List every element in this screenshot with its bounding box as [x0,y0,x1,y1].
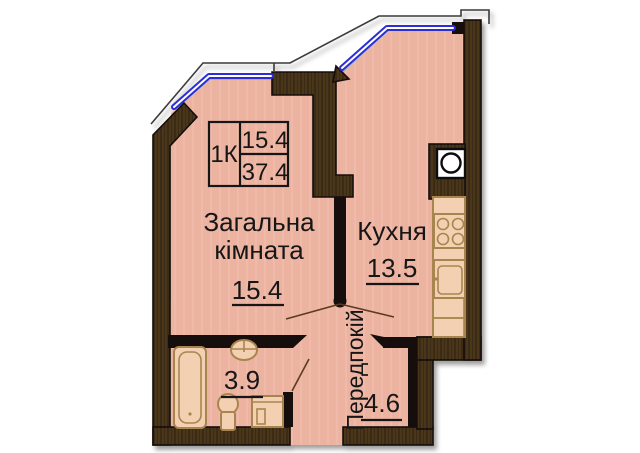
info-living-area: 15.4 [242,127,289,154]
floor-plan-page: 1К 15.4 37.4 Загальна кімната 15.4 Кухня… [0,0,640,453]
apartment-type-label: 1К [210,141,237,168]
toilet-tank [221,412,235,430]
living-room-area: 15.4 [232,275,283,305]
kitchen-area: 13.5 [367,253,418,283]
living-room-label-line2: кімната [214,235,304,265]
info-total-area: 37.4 [242,159,289,186]
entry-top-wall [383,337,417,348]
entry-right-wall-face [408,348,417,427]
hallway-floor [168,300,430,445]
kitchen-right-wall [464,20,481,360]
bathroom-right-wall [283,392,293,427]
living-room-label-line1: Загальна [203,207,315,237]
bathroom-area: 3.9 [224,365,260,395]
kitchen-sink-faucet [434,277,437,280]
boiler-icon [442,154,461,173]
floor-plan: 1К 15.4 37.4 Загальна кімната 15.4 Кухня… [0,0,640,453]
kitchen-label: Кухня [357,216,427,246]
hallway-area: 4.6 [364,388,400,418]
living-kitchen-divider [334,197,346,301]
bathtub-drain [188,412,191,415]
